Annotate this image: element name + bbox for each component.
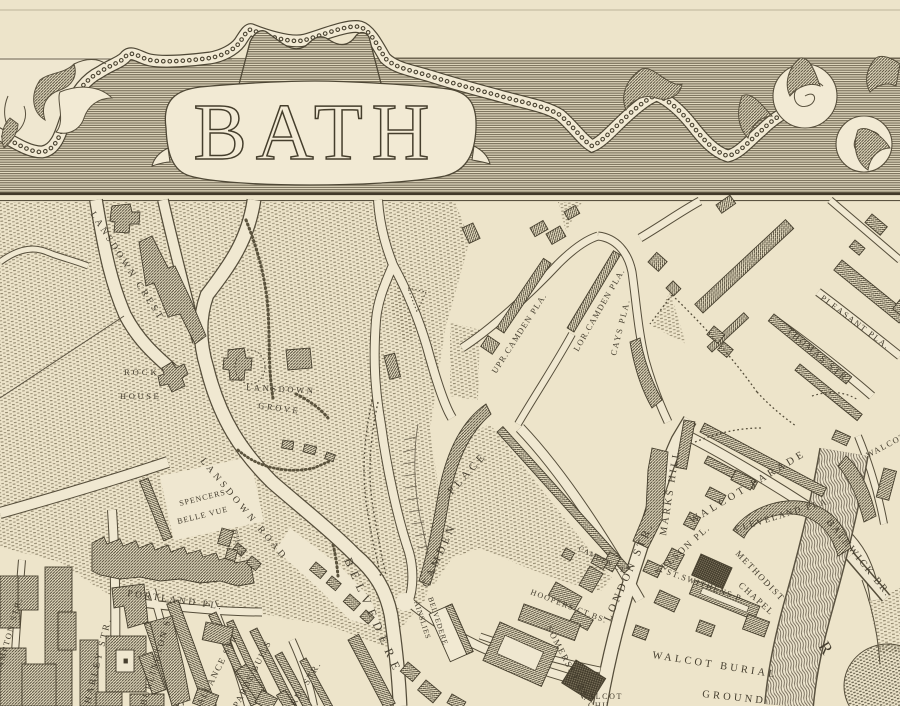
svg-text:BATH: BATH: [194, 89, 439, 177]
svg-text:CHU: CHU: [588, 701, 610, 706]
svg-text:HOUSE: HOUSE: [120, 391, 161, 401]
svg-text:ROCK: ROCK: [124, 367, 160, 377]
